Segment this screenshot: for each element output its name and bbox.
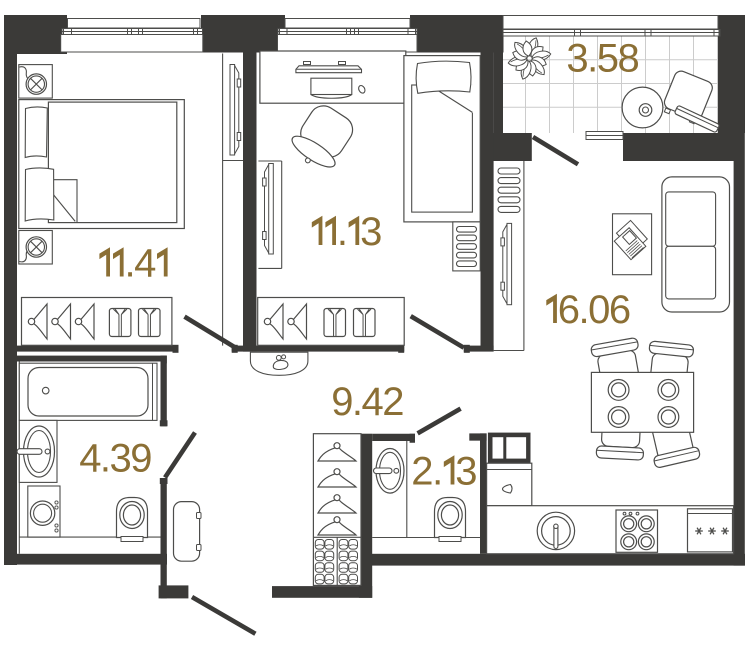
svg-text:.: . bbox=[432, 450, 443, 494]
svg-text:2: 2 bbox=[411, 450, 433, 494]
svg-text:8: 8 bbox=[618, 37, 640, 81]
svg-text:6: 6 bbox=[558, 288, 580, 332]
svg-text:3: 3 bbox=[566, 37, 588, 81]
svg-text:3: 3 bbox=[360, 210, 382, 254]
svg-text:5: 5 bbox=[597, 37, 619, 81]
svg-text:4: 4 bbox=[134, 242, 156, 286]
svg-text:9: 9 bbox=[331, 380, 353, 424]
svg-text:.: . bbox=[337, 210, 348, 254]
svg-text:9: 9 bbox=[130, 437, 152, 481]
svg-text:0: 0 bbox=[588, 288, 610, 332]
svg-text:3: 3 bbox=[455, 450, 477, 494]
svg-text:4: 4 bbox=[79, 437, 101, 481]
svg-text:3: 3 bbox=[110, 437, 132, 481]
svg-text:2: 2 bbox=[382, 380, 404, 424]
svg-text:6: 6 bbox=[609, 288, 631, 332]
svg-text:4: 4 bbox=[362, 380, 384, 424]
